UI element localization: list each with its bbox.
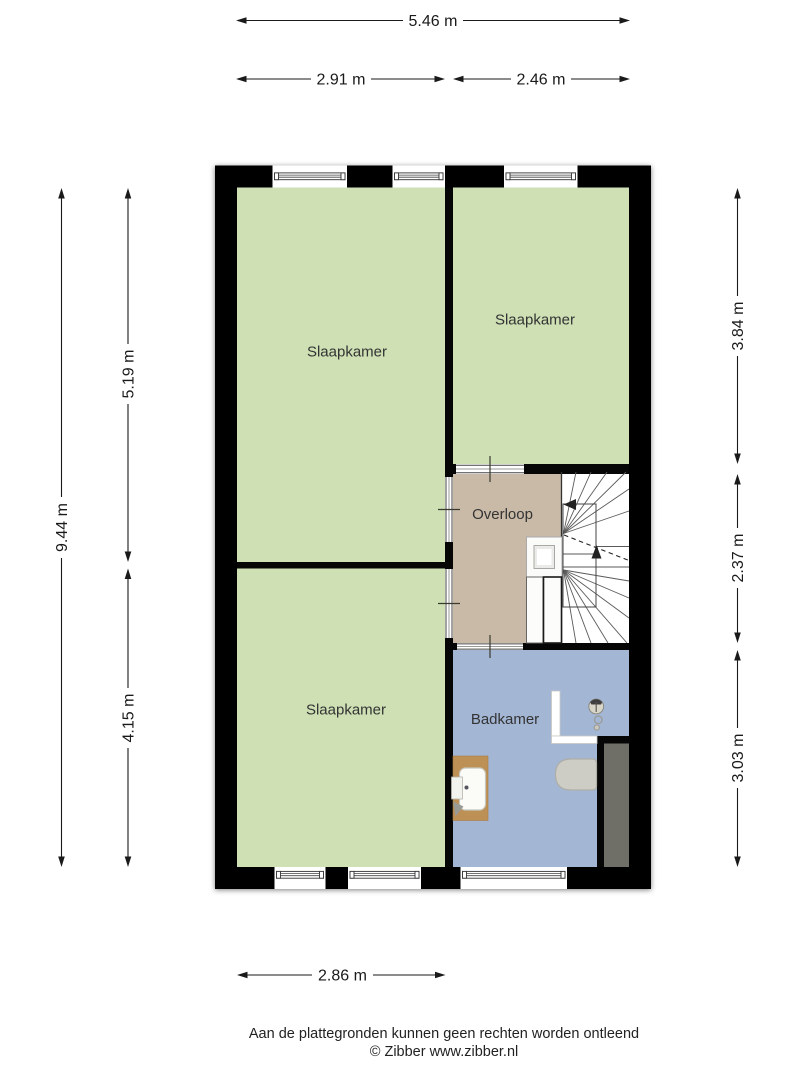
svg-text:5.19 m: 5.19 m	[120, 350, 137, 399]
svg-text:Aan de plattegronden kunnen ge: Aan de plattegronden kunnen geen rechten…	[249, 1026, 639, 1042]
svg-text:2.46 m: 2.46 m	[517, 71, 566, 88]
svg-text:Overloop: Overloop	[472, 506, 533, 523]
svg-text:3.03 m: 3.03 m	[730, 734, 747, 783]
svg-text:Slaapkamer: Slaapkamer	[306, 701, 386, 718]
svg-text:4.15 m: 4.15 m	[120, 694, 137, 743]
svg-text:9.44 m: 9.44 m	[54, 503, 71, 552]
svg-text:2.37 m: 2.37 m	[730, 534, 747, 583]
svg-text:3.84 m: 3.84 m	[730, 302, 747, 351]
svg-text:Slaapkamer: Slaapkamer	[307, 343, 387, 360]
svg-text:2.91 m: 2.91 m	[317, 71, 366, 88]
svg-text:2.86 m: 2.86 m	[318, 967, 367, 984]
svg-text:© Zibber www.zibber.nl: © Zibber www.zibber.nl	[370, 1044, 519, 1060]
svg-text:5.46 m: 5.46 m	[409, 13, 458, 30]
svg-text:Badkamer: Badkamer	[471, 711, 539, 728]
svg-text:Slaapkamer: Slaapkamer	[495, 311, 575, 328]
